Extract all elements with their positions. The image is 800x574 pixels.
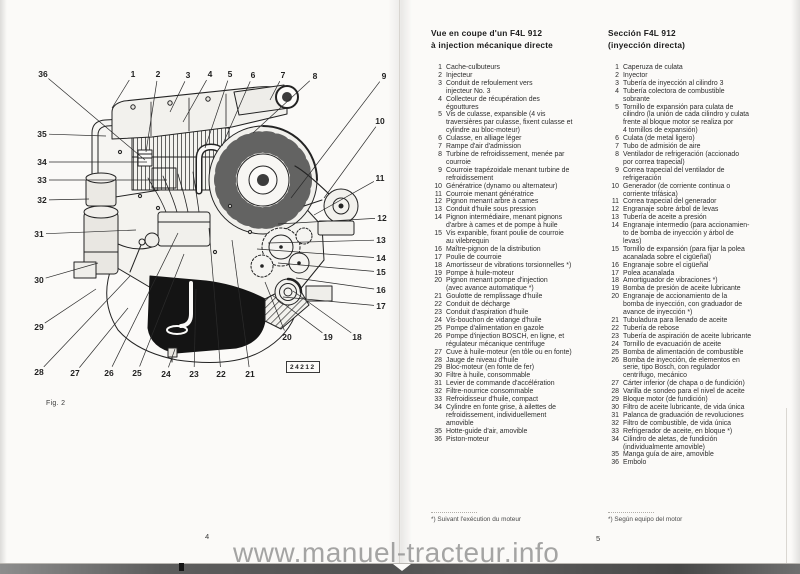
page-gutter-shadow	[388, 0, 412, 563]
scan-artifact-mark	[179, 563, 184, 571]
item-number: 6	[608, 135, 619, 143]
item-number: 23	[608, 333, 619, 341]
item-text: Culasse, en alliage léger	[446, 135, 521, 143]
item-number: 15	[608, 246, 619, 254]
french-title: Vue en coupe d'un F4L 912 à injection mé…	[431, 28, 601, 51]
item-number: 36	[608, 459, 619, 467]
item-number: 17	[431, 254, 442, 262]
item-number: 19	[608, 285, 619, 293]
callout-number-12: 12	[377, 213, 387, 223]
callout-number-30: 30	[34, 275, 44, 285]
item-number: 30	[608, 404, 619, 412]
parts-list-item: 8Ventilador de refrigeración (accionado …	[608, 151, 792, 167]
callout-number-25: 25	[132, 368, 142, 378]
parts-list-item: 36Embolo	[608, 459, 792, 467]
item-number: 34	[608, 436, 619, 444]
parts-list-item: 23Tubería de aspiración de aceite lubric…	[608, 333, 792, 341]
callout-number-15: 15	[376, 267, 386, 277]
spanish-title: Sección F4L 912 (inyección directa)	[608, 28, 792, 51]
callout-number-19: 19	[323, 332, 333, 342]
item-number: 7	[608, 143, 619, 151]
item-text: Refroidisseur d'huile, compact	[446, 396, 538, 404]
item-text: Refrigerador de aceite, en bloque *)	[623, 428, 732, 436]
spanish-title-line2: (inyección directa)	[608, 40, 792, 52]
item-text: Collecteur de récupération des égoutture…	[446, 96, 540, 112]
parts-list-item: 3Conduit de refoulement vers injecteur N…	[431, 80, 601, 96]
callout-number-6: 6	[251, 70, 256, 80]
parts-list-item: 14Engranaje intermedio (para accionamien…	[608, 222, 792, 246]
parts-list-item: 14Pignon intermédiaire, menant pignons d…	[431, 214, 601, 230]
item-text: Turbine de refroidissement, menée par co…	[446, 151, 564, 167]
item-text: Rampe d'air d'admission	[446, 143, 521, 151]
item-text: Jauge de niveau d'huile	[446, 357, 518, 365]
callout-number-9: 9	[382, 71, 387, 81]
item-text: Courroie menant génératrice	[446, 191, 534, 199]
item-number: 36	[431, 436, 442, 444]
item-text: Pompe à huile-moteur	[446, 270, 514, 278]
item-text: Tornillo de evacuación de aceite	[623, 341, 721, 349]
item-number: 18	[431, 262, 442, 270]
callout-number-20: 20	[282, 332, 292, 342]
item-number: 28	[608, 388, 619, 396]
item-number: 34	[431, 404, 442, 412]
item-number: 26	[608, 357, 619, 365]
parts-list-item: 15Tornillo de expansión (para fijar la p…	[608, 246, 792, 262]
parts-list-item: 21Tubuladura para llenado de aceite	[608, 317, 792, 325]
leader-line-32	[49, 199, 89, 200]
parts-list-item: 7Rampe d'air d'admission	[431, 143, 601, 151]
item-text: Pignon intermédiaire, menant pignons d'a…	[446, 214, 562, 230]
callout-number-36: 36	[38, 69, 48, 79]
parts-list-item: 3Tubería de inyección al cilindro 3	[608, 80, 792, 88]
callout-number-8: 8	[313, 71, 318, 81]
parts-list-item: 29Bloc-moteur (en fonte de fer)	[431, 364, 601, 372]
parts-list-item: 28Varilla de sondeo para el nivel de ace…	[608, 388, 792, 396]
leader-line-10	[324, 127, 376, 198]
item-text: Manga guía de aire, amovible	[623, 451, 714, 459]
item-text: Levier de commande d'accélération	[446, 380, 555, 388]
item-text: Filtre à huile, consommable	[446, 372, 530, 380]
french-parts-list: 1Cache-culbuteurs2Injecteur3Conduit de r…	[431, 64, 601, 444]
item-number: 13	[431, 206, 442, 214]
figure-label: Fig. 2	[46, 400, 65, 407]
item-number: 31	[608, 412, 619, 420]
parts-list-item: 16Maître-pignon de la distribution	[431, 246, 601, 254]
item-number: 4	[608, 88, 619, 96]
item-text: Bloque motor (de fundición)	[623, 396, 708, 404]
item-number: 20	[431, 277, 442, 285]
item-number: 5	[431, 111, 442, 119]
item-number: 24	[608, 341, 619, 349]
item-text: Tornillo de expansión (para fijar la pol…	[623, 246, 745, 262]
item-number: 4	[431, 96, 442, 104]
item-text: Cylindre en fonte grise, à ailettes de r…	[446, 404, 556, 428]
item-text: Bomba de presión de aceite lubricante	[623, 285, 741, 293]
parts-list-item: 24Vis-bouchon de vidange d'huile	[431, 317, 601, 325]
item-text: Tubería de inyección al cilindro 3	[623, 80, 723, 88]
callout-number-18: 18	[352, 332, 362, 342]
item-number: 20	[608, 293, 619, 301]
item-number: 32	[431, 388, 442, 396]
item-text: Engranaje de accionamiento de la bomba d…	[623, 293, 742, 317]
parts-list-item: 5Vis de culasse, expansible (4 vis trave…	[431, 111, 601, 135]
item-number: 32	[608, 420, 619, 428]
callout-number-3: 3	[186, 70, 191, 80]
parts-list-item: 31Palanca de graduación de revoluciones	[608, 412, 792, 420]
item-text: Vis expanible, fixant poulie de courroie…	[446, 230, 564, 246]
parts-list-item: 36Piston-moteur	[431, 436, 601, 444]
parts-list-item: 35Hotte-guide d'air, amovible	[431, 428, 601, 436]
item-text: Filtro de aceite lubricante, de vida úni…	[623, 404, 744, 412]
item-text: Courroie trapézoidale menant turbine de …	[446, 167, 569, 183]
parts-list-item: 27Cárter inferior (de chapa o de fundici…	[608, 380, 792, 388]
item-text: Tornillo de expansión para culata de cil…	[623, 104, 749, 136]
parts-list-item: 33Refrigerador de aceite, en bloque *)	[608, 428, 792, 436]
item-number: 19	[431, 270, 442, 278]
parts-list-item: 20Engranaje de accionamiento de la bomba…	[608, 293, 792, 317]
item-text: Ventilador de refrigeración (accionado p…	[623, 151, 739, 167]
item-number: 22	[431, 301, 442, 309]
callout-number-34: 34	[37, 157, 47, 167]
parts-list-item: 34Cylindre en fonte grise, à ailettes de…	[431, 404, 601, 428]
callout-number-31: 31	[34, 229, 44, 239]
item-number: 10	[431, 183, 442, 191]
item-text: Tubería colectora de combustible sobrant…	[623, 88, 725, 104]
leader-line-29	[45, 289, 96, 323]
item-text: Caperuza de culata	[623, 64, 683, 72]
leader-line-27	[79, 308, 128, 368]
item-text: Engranaje sobre árbol de levas	[623, 206, 718, 214]
item-text: Tubería de aspiración de aceite lubrican…	[623, 333, 751, 341]
item-number: 21	[431, 293, 442, 301]
item-number: 8	[608, 151, 619, 159]
item-number: 25	[431, 325, 442, 333]
engine-drawing	[74, 85, 358, 363]
page-number-left: 4	[205, 532, 209, 541]
item-text: Tubo de admisión de aire	[623, 143, 701, 151]
item-number: 17	[608, 270, 619, 278]
item-text: Piston-moteur	[446, 436, 489, 444]
parts-list-item: 6Culata (de metal ligero)	[608, 135, 792, 143]
parts-list-item: 35Manga guía de aire, amovible	[608, 451, 792, 459]
item-number: 29	[431, 364, 442, 372]
item-text: Filtro de combustible, de vida única	[623, 420, 731, 428]
item-text: Conduit de refoulement vers injecteur No…	[446, 80, 533, 96]
callout-number-28: 28	[34, 367, 44, 377]
parts-list-item: 15Vis expanible, fixant poulie de courro…	[431, 230, 601, 246]
item-text: Culata (de metal ligero)	[623, 135, 695, 143]
item-text: Pignon menant pompe d'injection (avec av…	[446, 277, 548, 293]
parts-list-item: 31Levier de commande d'accélération	[431, 380, 601, 388]
parts-list-item: 16Engranaje sobre el cigüeñal	[608, 262, 792, 270]
callout-number-23: 23	[189, 369, 199, 379]
item-text: Bloc-moteur (en fonte de fer)	[446, 364, 534, 372]
parts-list-item: 26Pompe d'injection BOSCH, en ligne, et …	[431, 333, 601, 349]
item-number: 9	[608, 167, 619, 175]
parts-list-item: 10Generador (de corriente continua o cor…	[608, 183, 792, 199]
parts-list-item: 19Pompe à huile-moteur	[431, 270, 601, 278]
item-text: Hotte-guide d'air, amovible	[446, 428, 527, 436]
parts-list-item: 17Polea acanalada	[608, 270, 792, 278]
watermark-text: www.manuel-tracteur.info	[233, 537, 559, 569]
parts-list-item: 28Jauge de niveau d'huile	[431, 357, 601, 365]
item-text: Injecteur	[446, 72, 472, 80]
item-text: Correa trapecial del generador	[623, 198, 716, 206]
callout-number-13: 13	[376, 235, 386, 245]
item-number: 14	[608, 222, 619, 230]
item-number: 33	[431, 396, 442, 404]
parts-list-item: 22Conduit de décharge	[431, 301, 601, 309]
item-number: 14	[431, 214, 442, 222]
parts-list-item: 30Filtro de aceite lubricante, de vida ú…	[608, 404, 792, 412]
item-text: Maître-pignon de la distribution	[446, 246, 541, 254]
item-number: 9	[431, 167, 442, 175]
item-text: Conduit d'huile sous pression	[446, 206, 536, 214]
item-text: Palanca de graduación de revoluciones	[623, 412, 744, 420]
callout-number-10: 10	[375, 116, 385, 126]
item-number: 25	[608, 349, 619, 357]
parts-list-item: 13Conduit d'huile sous pression	[431, 206, 601, 214]
parts-list-item: 10Génératrice (dynamo ou alternateur)	[431, 183, 601, 191]
item-number: 5	[608, 104, 619, 112]
scan-edge-left	[0, 0, 7, 574]
item-number: 16	[608, 262, 619, 270]
callout-number-21: 21	[245, 369, 255, 379]
item-text: Tubería de aceite a presión	[623, 214, 707, 222]
parts-list-item: 9Correa trapecial del ventilador de refr…	[608, 167, 792, 183]
parts-list-item: 8Turbine de refroidissement, menée par c…	[431, 151, 601, 167]
item-number: 27	[608, 380, 619, 388]
item-number: 31	[431, 380, 442, 388]
callout-number-22: 22	[216, 369, 226, 379]
callout-number-2: 2	[156, 69, 161, 79]
item-number: 35	[431, 428, 442, 436]
item-text: Correa trapecial del ventilador de refri…	[623, 167, 725, 183]
callout-number-29: 29	[34, 322, 44, 332]
item-text: Tubuladura para llenado de aceite	[623, 317, 727, 325]
item-number: 2	[608, 72, 619, 80]
item-number: 24	[431, 317, 442, 325]
callout-number-16: 16	[376, 285, 386, 295]
parts-list-item: 12Pignon menant arbre à cames	[431, 198, 601, 206]
spanish-column: Sección F4L 912 (inyección directa) 1Cap…	[608, 28, 792, 467]
item-text: Engranaje sobre el cigüeñal	[623, 262, 708, 270]
item-number: 2	[431, 72, 442, 80]
engine-cutaway-figure: 1234567891011121314151617181920212223242…	[0, 0, 400, 574]
parts-list-item: 9Courroie trapézoidale menant turbine de…	[431, 167, 601, 183]
parts-list-item: 33Refroidisseur d'huile, compact	[431, 396, 601, 404]
item-text: Vis de culasse, expansible (4 vis traver…	[446, 111, 572, 135]
item-text: Embolo	[623, 459, 646, 467]
item-number: 3	[431, 80, 442, 88]
scan-edge-right	[791, 0, 800, 574]
item-text: Goulotte de remplissage d'huile	[446, 293, 542, 301]
callout-number-17: 17	[376, 301, 386, 311]
parts-list-item: 23Conduit d'aspiration d'huile	[431, 309, 601, 317]
parts-list-item: 2Inyector	[608, 72, 792, 80]
callout-number-1: 1	[131, 69, 136, 79]
callout-number-5: 5	[228, 69, 233, 79]
parts-list-item: 30Filtre à huile, consommable	[431, 372, 601, 380]
item-text: Polea acanalada	[623, 270, 674, 278]
callout-number-32: 32	[37, 195, 47, 205]
item-text: Pompe d'alimentation en gazole	[446, 325, 544, 333]
item-text: Pignon menant arbre à cames	[446, 198, 538, 206]
parts-list-item: 32Filtre-nourrice consommable	[431, 388, 601, 396]
french-title-line2: à injection mécanique directe	[431, 40, 601, 52]
item-number: 10	[608, 183, 619, 191]
item-number: 1	[431, 64, 442, 72]
french-column: Vue en coupe d'un F4L 912 à injection mé…	[431, 28, 601, 444]
item-number: 11	[608, 198, 619, 206]
item-number: 6	[431, 135, 442, 143]
item-text: Tubería de rebose	[623, 325, 679, 333]
item-number: 18	[608, 277, 619, 285]
item-number: 33	[608, 428, 619, 436]
item-text: Cilindro de aletas, de fundición (indivi…	[623, 436, 717, 452]
item-number: 3	[608, 80, 619, 88]
item-number: 23	[431, 309, 442, 317]
item-number: 7	[431, 143, 442, 151]
parts-list-item: 34Cilindro de aletas, de fundición (indi…	[608, 436, 792, 452]
item-number: 13	[608, 214, 619, 222]
item-text: Inyector	[623, 72, 648, 80]
parts-list-item: 25Pompe d'alimentation en gazole	[431, 325, 601, 333]
parts-list-item: 7Tubo de admisión de aire	[608, 143, 792, 151]
item-number: 35	[608, 451, 619, 459]
item-text: Engranaje intermedio (para accionamien- …	[623, 222, 749, 246]
parts-list-item: 1Cache-culbuteurs	[431, 64, 601, 72]
item-number: 30	[431, 372, 442, 380]
parts-list-item: 32Filtro de combustible, de vida única	[608, 420, 792, 428]
scanned-manual-spread: 1234567891011121314151617181920212223242…	[0, 0, 800, 574]
plate-number: 24212	[286, 361, 320, 373]
parts-list-item: 25Bomba de alimentación de combustible	[608, 349, 792, 357]
item-text: Bomba de alimentación de combustible	[623, 349, 743, 357]
parts-list-item: 22Tubería de rebose	[608, 325, 792, 333]
item-text: Amortisseur de vibrations torsionnelles …	[446, 262, 571, 270]
item-text: Pompe d'injection BOSCH, en ligne, et ré…	[446, 333, 564, 349]
item-text: Cache-culbuteurs	[446, 64, 500, 72]
item-number: 1	[608, 64, 619, 72]
callout-number-4: 4	[208, 69, 213, 79]
parts-list-item: 11Courroie menant génératrice	[431, 191, 601, 199]
parts-list-item: 13Tubería de aceite a presión	[608, 214, 792, 222]
parts-list-item: 12Engranaje sobre árbol de levas	[608, 206, 792, 214]
item-number: 16	[431, 246, 442, 254]
item-text: Poulie de courroie	[446, 254, 502, 262]
item-text: Cárter inferior (de chapa o de fundición…	[623, 380, 745, 388]
parts-list-item: 21Goulotte de remplissage d'huile	[431, 293, 601, 301]
item-number: 15	[431, 230, 442, 238]
page-edge-line	[786, 408, 787, 565]
page-gutter-line	[399, 0, 400, 563]
callout-number-35: 35	[37, 129, 47, 139]
spanish-title-line1: Sección F4L 912	[608, 28, 792, 40]
callout-number-26: 26	[104, 368, 114, 378]
parts-list-item: 17Poulie de courroie	[431, 254, 601, 262]
parts-list-item: 18Amortiguador de vibraciones *)	[608, 277, 792, 285]
parts-list-item: 6Culasse, en alliage léger	[431, 135, 601, 143]
parts-list-item: 29Bloque motor (de fundición)	[608, 396, 792, 404]
spanish-footnote: *) Según equipo del motor	[608, 512, 682, 523]
item-text: Conduit d'aspiration d'huile	[446, 309, 528, 317]
french-footnote: *) Suivant l'exécution du moteur	[431, 512, 521, 523]
page-number-right: 5	[596, 534, 600, 543]
callout-number-11: 11	[376, 173, 385, 183]
callout-number-14: 14	[376, 253, 386, 263]
item-number: 12	[431, 198, 442, 206]
callout-number-7: 7	[281, 70, 286, 80]
item-number: 27	[431, 349, 442, 357]
item-text: Filtre-nourrice consommable	[446, 388, 533, 396]
parts-list-item: 20Pignon menant pompe d'injection (avec …	[431, 277, 601, 293]
item-number: 8	[431, 151, 442, 159]
item-text: Generador (de corriente continua o corri…	[623, 183, 730, 199]
item-text: Vis-bouchon de vidange d'huile	[446, 317, 541, 325]
item-text: Cuve à huile-moteur (en tôle ou en fonte…	[446, 349, 572, 357]
item-number: 22	[608, 325, 619, 333]
parts-list-item: 18Amortisseur de vibrations torsionnelle…	[431, 262, 601, 270]
parts-list-item: 11Correa trapecial del generador	[608, 198, 792, 206]
spanish-parts-list: 1Caperuza de culata2Inyector3Tubería de …	[608, 64, 792, 467]
callout-number-33: 33	[37, 175, 47, 185]
callout-number-27: 27	[70, 368, 80, 378]
callout-number-24: 24	[161, 369, 171, 379]
parts-list-item: 5Tornillo de expansión para culata de ci…	[608, 104, 792, 136]
parts-list-item: 26Bomba de inyección, de elementos en se…	[608, 357, 792, 381]
french-title-line1: Vue en coupe d'un F4L 912	[431, 28, 601, 40]
item-text: Génératrice (dynamo ou alternateur)	[446, 183, 557, 191]
parts-list-item: 27Cuve à huile-moteur (en tôle ou en fon…	[431, 349, 601, 357]
item-text: Varilla de sondeo para el nivel de aceit…	[623, 388, 745, 396]
parts-list-item: 24Tornillo de evacuación de aceite	[608, 341, 792, 349]
parts-list-item: 19Bomba de presión de aceite lubricante	[608, 285, 792, 293]
item-number: 11	[431, 191, 442, 199]
item-number: 12	[608, 206, 619, 214]
parts-list-item: 2Injecteur	[431, 72, 601, 80]
item-number: 29	[608, 396, 619, 404]
parts-list-item: 4Tubería colectora de combustible sobran…	[608, 88, 792, 104]
item-text: Amortiguador de vibraciones *)	[623, 277, 718, 285]
item-number: 28	[431, 357, 442, 365]
item-number: 21	[608, 317, 619, 325]
item-text: Bomba de inyección, de elementos en seri…	[623, 357, 740, 381]
parts-list-item: 4Collecteur de récupération des égouttur…	[431, 96, 601, 112]
parts-list-item: 1Caperuza de culata	[608, 64, 792, 72]
item-text: Conduit de décharge	[446, 301, 510, 309]
item-number: 26	[431, 333, 442, 341]
